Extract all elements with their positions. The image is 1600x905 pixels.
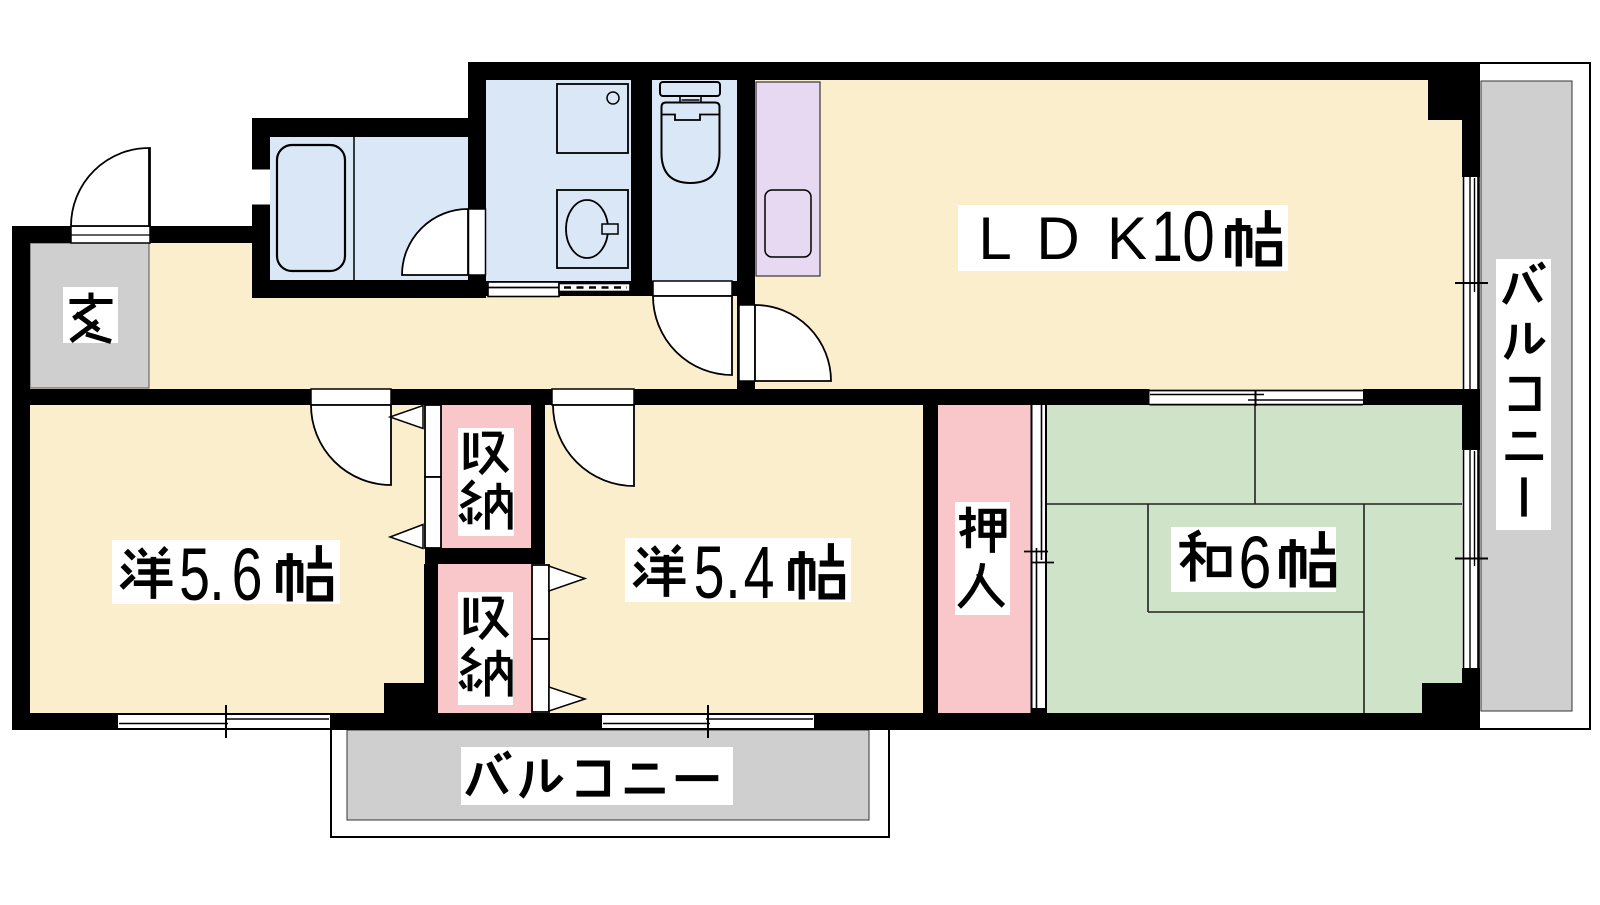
svg-text:1: 1 (1151, 197, 1183, 277)
svg-text:4: 4 (744, 531, 775, 614)
svg-text:.: . (725, 531, 740, 614)
svg-text:D: D (1036, 205, 1079, 272)
svg-text:.: . (209, 533, 224, 616)
svg-text:0: 0 (1182, 196, 1214, 276)
svg-text:5: 5 (694, 531, 725, 614)
svg-text:K: K (1107, 205, 1147, 272)
svg-text:6: 6 (232, 533, 263, 616)
svg-text:5: 5 (179, 533, 210, 616)
svg-text:L: L (978, 205, 1011, 272)
svg-text:6: 6 (1239, 522, 1272, 605)
